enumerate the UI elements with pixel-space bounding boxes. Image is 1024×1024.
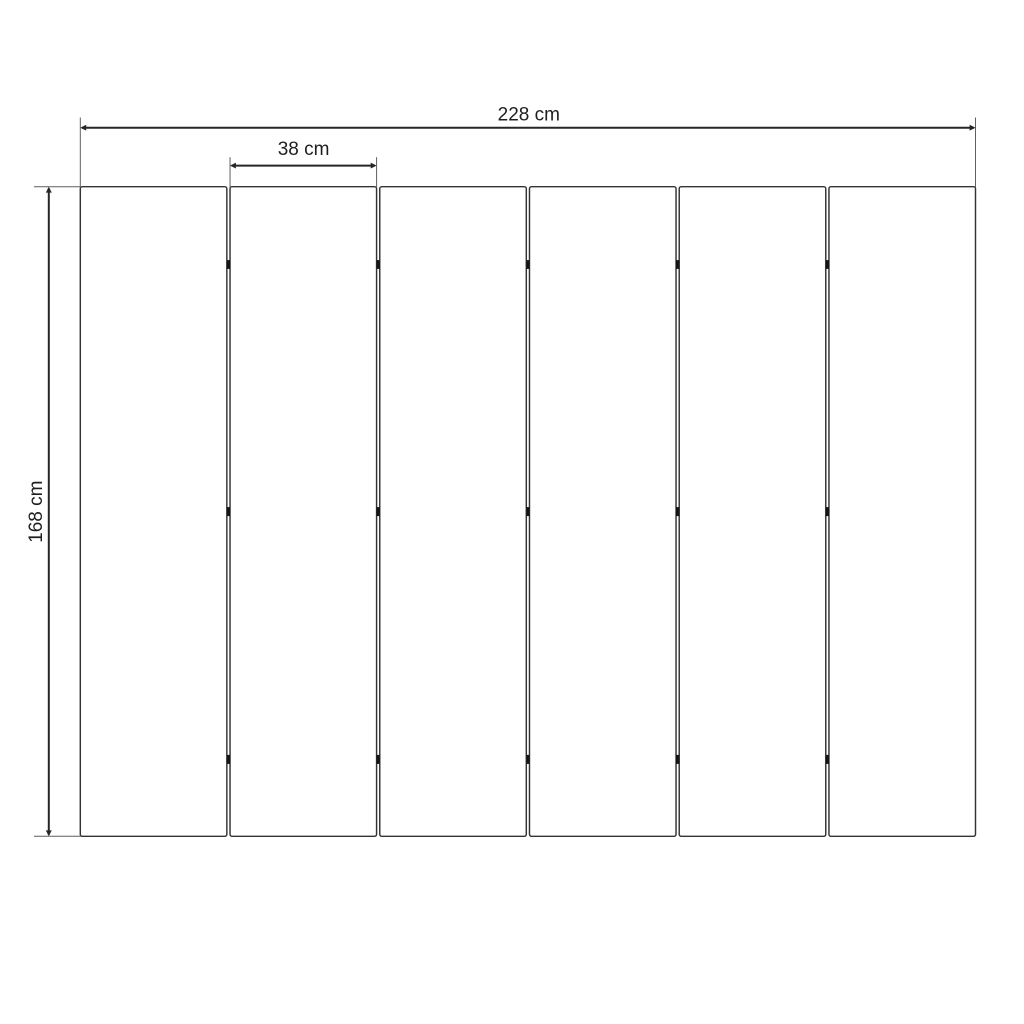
svg-text:38 cm: 38 cm bbox=[278, 139, 330, 160]
svg-text:228 cm: 228 cm bbox=[498, 104, 560, 125]
svg-text:168 cm: 168 cm bbox=[26, 481, 47, 543]
